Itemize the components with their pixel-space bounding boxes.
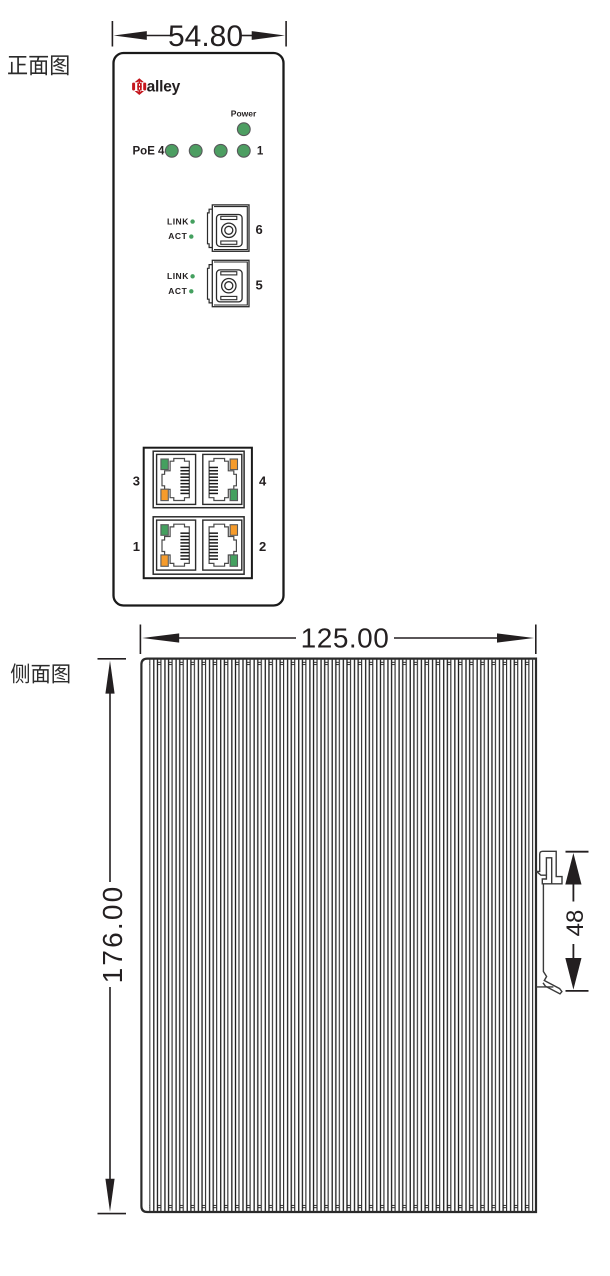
svg-text:1: 1 (133, 539, 140, 554)
svg-text:LINK: LINK (167, 271, 189, 281)
svg-text:alley: alley (147, 79, 181, 96)
svg-text:3: 3 (133, 474, 140, 489)
svg-text:ACT: ACT (168, 231, 187, 241)
svg-text:5: 5 (256, 277, 263, 292)
svg-text:LINK: LINK (167, 216, 189, 226)
svg-text:176.00: 176.00 (97, 885, 128, 984)
svg-text:54.80: 54.80 (168, 20, 243, 53)
svg-text:6: 6 (256, 222, 263, 237)
svg-text:ACT: ACT (168, 286, 187, 296)
svg-text:125.00: 125.00 (301, 623, 390, 654)
svg-text:4: 4 (259, 474, 267, 489)
svg-text:1: 1 (257, 145, 264, 157)
svg-text:48: 48 (562, 910, 589, 937)
svg-text:Power: Power (231, 109, 257, 119)
svg-text:PoE 4: PoE 4 (133, 145, 166, 157)
svg-text:2: 2 (259, 539, 266, 554)
